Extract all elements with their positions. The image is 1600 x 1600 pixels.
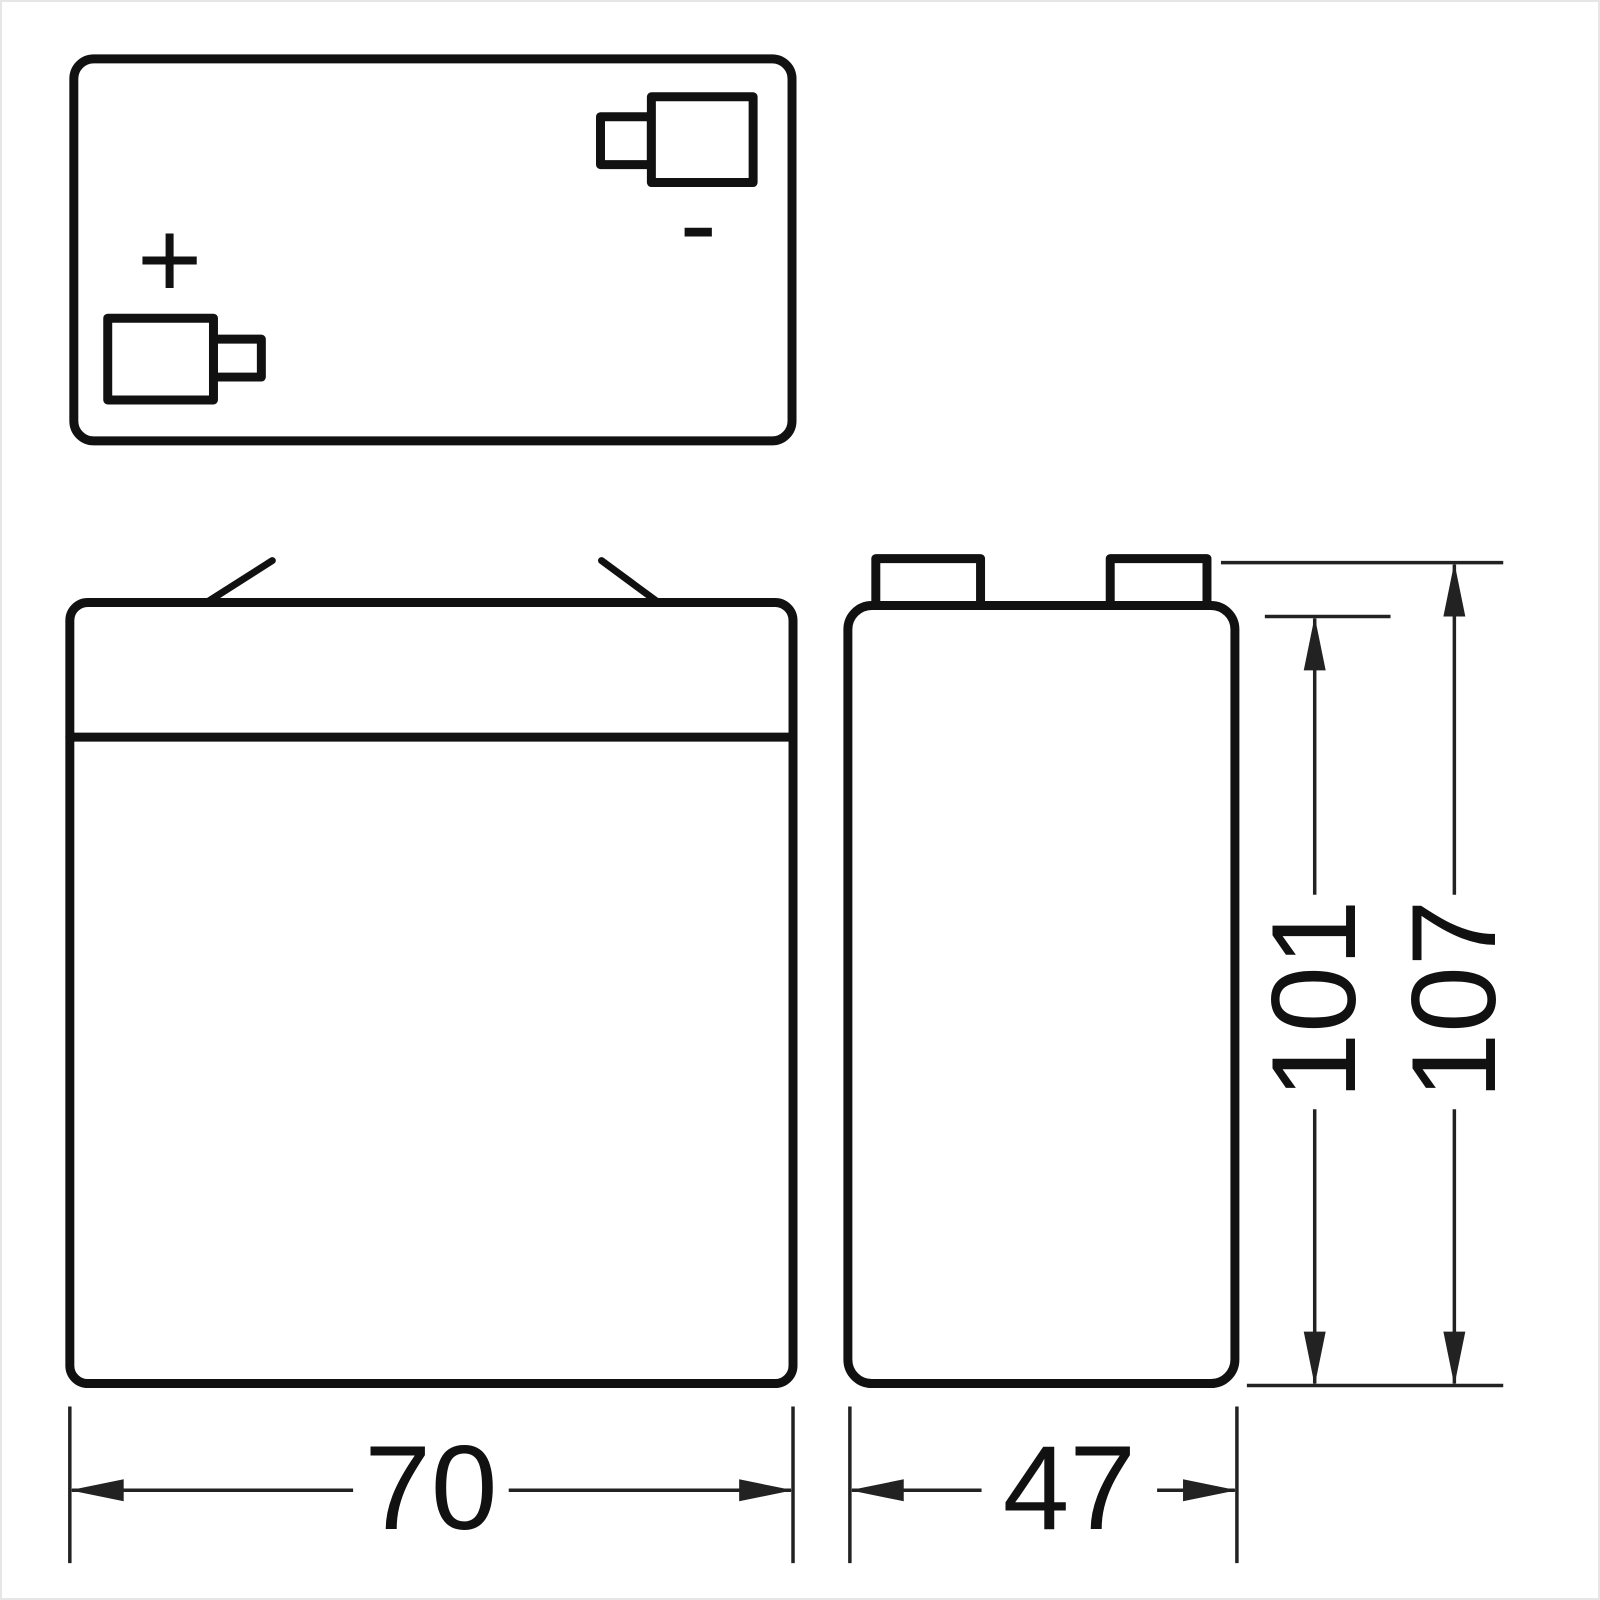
front-view-right-terminal-edge — [601, 561, 658, 603]
arrow-up-icon — [1304, 616, 1326, 670]
positive-terminal-block — [108, 318, 214, 400]
arrow-up-icon — [1443, 563, 1465, 617]
dimension-body-height: 101 — [1248, 616, 1390, 1385]
dimension-label-side-width: 47 — [1003, 1422, 1136, 1555]
dimension-side-width: 47 — [850, 1406, 1237, 1563]
dimension-label-body-height: 101 — [1248, 900, 1381, 1100]
arrow-down-icon — [1304, 1332, 1326, 1386]
side-view-outline — [848, 605, 1235, 1383]
front-view — [70, 561, 793, 1384]
minus-polarity-icon: - — [680, 161, 717, 286]
side-view-terminal-tab-2 — [1110, 559, 1207, 606]
dimension-front-width: 70 — [70, 1406, 793, 1563]
dimension-label-front-width: 70 — [364, 1422, 497, 1555]
arrow-right-icon — [1183, 1479, 1237, 1501]
negative-terminal-tab — [601, 117, 652, 165]
arrow-right-icon — [739, 1479, 793, 1501]
side-view-terminal-tab-1 — [876, 559, 981, 606]
arrow-down-icon — [1443, 1332, 1465, 1386]
arrow-left-icon — [70, 1479, 124, 1501]
top-view: + - — [74, 59, 792, 441]
plus-polarity-icon: + — [137, 197, 202, 322]
front-view-left-terminal-edge — [206, 561, 272, 603]
positive-terminal-tab — [213, 339, 261, 377]
dimension-label-overall-height: 107 — [1388, 900, 1521, 1100]
side-view — [848, 559, 1235, 1384]
front-view-outline — [70, 602, 793, 1383]
technical-drawing-canvas: + - — [0, 0, 1600, 1600]
arrow-left-icon — [850, 1479, 904, 1501]
